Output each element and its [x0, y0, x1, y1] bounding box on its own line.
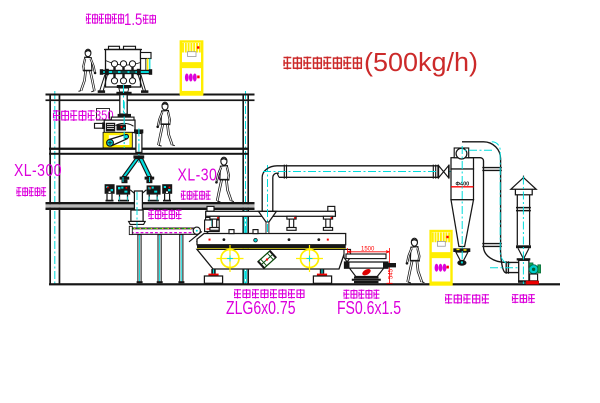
svg-text:XL-300: XL-300 — [14, 160, 62, 180]
svg-text:ZLG6x0.75: ZLG6x0.75 — [226, 298, 296, 318]
svg-text:FS0.6x1.5: FS0.6x1.5 — [337, 298, 401, 318]
svg-text:1.5: 1.5 — [124, 11, 142, 30]
svg-text:1500: 1500 — [361, 246, 375, 252]
svg-text:545: 545 — [389, 268, 395, 279]
svg-text:(500kg/h): (500kg/h) — [364, 49, 478, 77]
